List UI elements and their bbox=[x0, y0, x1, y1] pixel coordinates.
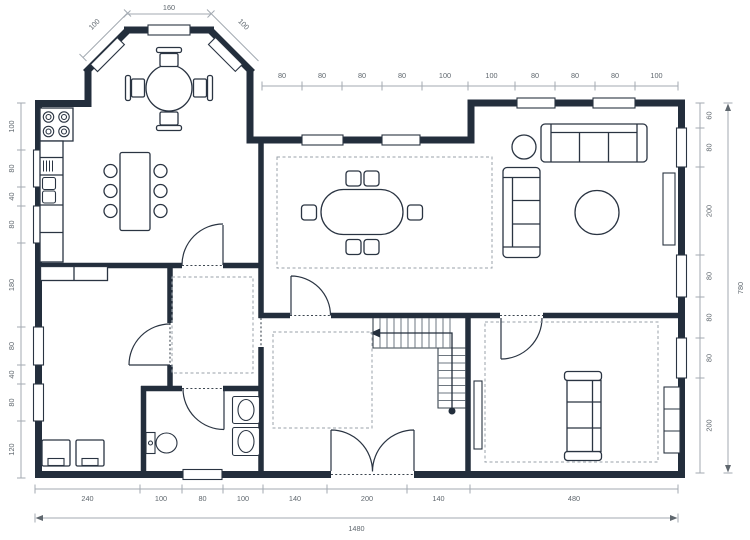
dim-label: 80 bbox=[705, 354, 714, 362]
dim-label: 140 bbox=[432, 494, 444, 503]
floor-plan-canvas: 80 80 80 80 100 100 80 80 80 100 160 100… bbox=[0, 0, 750, 535]
chair-icon bbox=[346, 240, 361, 255]
dim-label: 480 bbox=[568, 494, 580, 503]
dim-label: 80 bbox=[705, 143, 714, 151]
dim-label: 80 bbox=[278, 71, 286, 80]
sofa-icon bbox=[541, 124, 647, 162]
stair-start-dot bbox=[449, 408, 456, 415]
chair-icon bbox=[364, 240, 379, 255]
window-icon bbox=[34, 327, 44, 365]
round-coffee-table-icon bbox=[575, 191, 619, 235]
bathroom-sink-icon bbox=[233, 397, 260, 424]
stool-icon bbox=[104, 165, 117, 178]
sofa-icon bbox=[503, 168, 540, 258]
dim-label: 200 bbox=[705, 419, 714, 431]
chair-icon bbox=[157, 112, 182, 131]
chair-icon bbox=[302, 205, 317, 220]
dim-label: 100 bbox=[485, 71, 497, 80]
stool-icon bbox=[104, 205, 117, 218]
dim-label: 80 bbox=[705, 272, 714, 280]
dim-label: 180 bbox=[7, 279, 16, 291]
dim-label: 100 bbox=[7, 120, 16, 132]
dim-label: 200 bbox=[705, 205, 714, 217]
window-icon bbox=[517, 98, 555, 108]
window-icon bbox=[677, 255, 687, 297]
stool-icon bbox=[154, 205, 167, 218]
chair-icon bbox=[42, 440, 70, 466]
chair-icon bbox=[194, 76, 213, 101]
double-bed-icon bbox=[565, 372, 602, 461]
radiator-icon bbox=[663, 173, 675, 245]
dim-label: 80 bbox=[318, 71, 326, 80]
dim-label: 80 bbox=[571, 71, 579, 80]
window-icon bbox=[677, 338, 687, 378]
dresser-icon bbox=[664, 387, 680, 453]
bathroom-sink-icon bbox=[233, 428, 260, 456]
window-icon bbox=[183, 470, 222, 480]
dim-label: 1480 bbox=[348, 524, 364, 533]
window-icon bbox=[593, 98, 635, 108]
window-icon bbox=[302, 135, 343, 145]
chair-icon bbox=[408, 205, 423, 220]
window-icon bbox=[34, 384, 44, 421]
dim-label: 80 bbox=[7, 164, 16, 172]
dim-label: 40 bbox=[7, 370, 16, 378]
dim-label: 80 bbox=[398, 71, 406, 80]
dim-label: 100 bbox=[650, 71, 662, 80]
dim-label: 80 bbox=[358, 71, 366, 80]
dim-label: 80 bbox=[7, 342, 16, 350]
dim-label: 100 bbox=[237, 494, 249, 503]
chair-icon bbox=[157, 48, 182, 67]
chair-icon bbox=[76, 440, 104, 466]
dim-label: 80 bbox=[531, 71, 539, 80]
dim-label: 100 bbox=[155, 494, 167, 503]
dim-label: 40 bbox=[7, 192, 16, 200]
dim-label: 160 bbox=[163, 3, 175, 12]
stove-icon bbox=[40, 108, 73, 141]
sink-basin-icon bbox=[43, 178, 56, 190]
dim-label: 200 bbox=[361, 494, 373, 503]
kitchen-counter-icon bbox=[40, 141, 63, 262]
dim-label: 80 bbox=[7, 220, 16, 228]
dim-label: 80 bbox=[705, 313, 714, 321]
window-icon bbox=[382, 135, 420, 145]
stool-icon bbox=[154, 165, 167, 178]
side-table-icon bbox=[512, 135, 536, 159]
dim-label: 60 bbox=[705, 111, 714, 119]
dim-label: 80 bbox=[611, 71, 619, 80]
sink-basin-icon bbox=[43, 191, 56, 203]
chair-icon bbox=[346, 171, 361, 186]
dim-label: 780 bbox=[736, 282, 745, 294]
dim-label: 140 bbox=[289, 494, 301, 503]
dresser-icon bbox=[41, 267, 108, 281]
dim-label: 100 bbox=[439, 71, 451, 80]
dim-label: 120 bbox=[7, 443, 16, 455]
window-icon bbox=[148, 25, 190, 35]
dim-label: 80 bbox=[7, 398, 16, 406]
dim-label: 80 bbox=[198, 494, 206, 503]
chair-icon bbox=[126, 76, 145, 101]
stool-icon bbox=[154, 185, 167, 198]
radiator-icon bbox=[474, 381, 482, 449]
window-icon bbox=[677, 128, 687, 167]
chair-icon bbox=[364, 171, 379, 186]
toilet-icon bbox=[146, 433, 177, 454]
dim-label: 240 bbox=[81, 494, 93, 503]
stool-icon bbox=[104, 185, 117, 198]
